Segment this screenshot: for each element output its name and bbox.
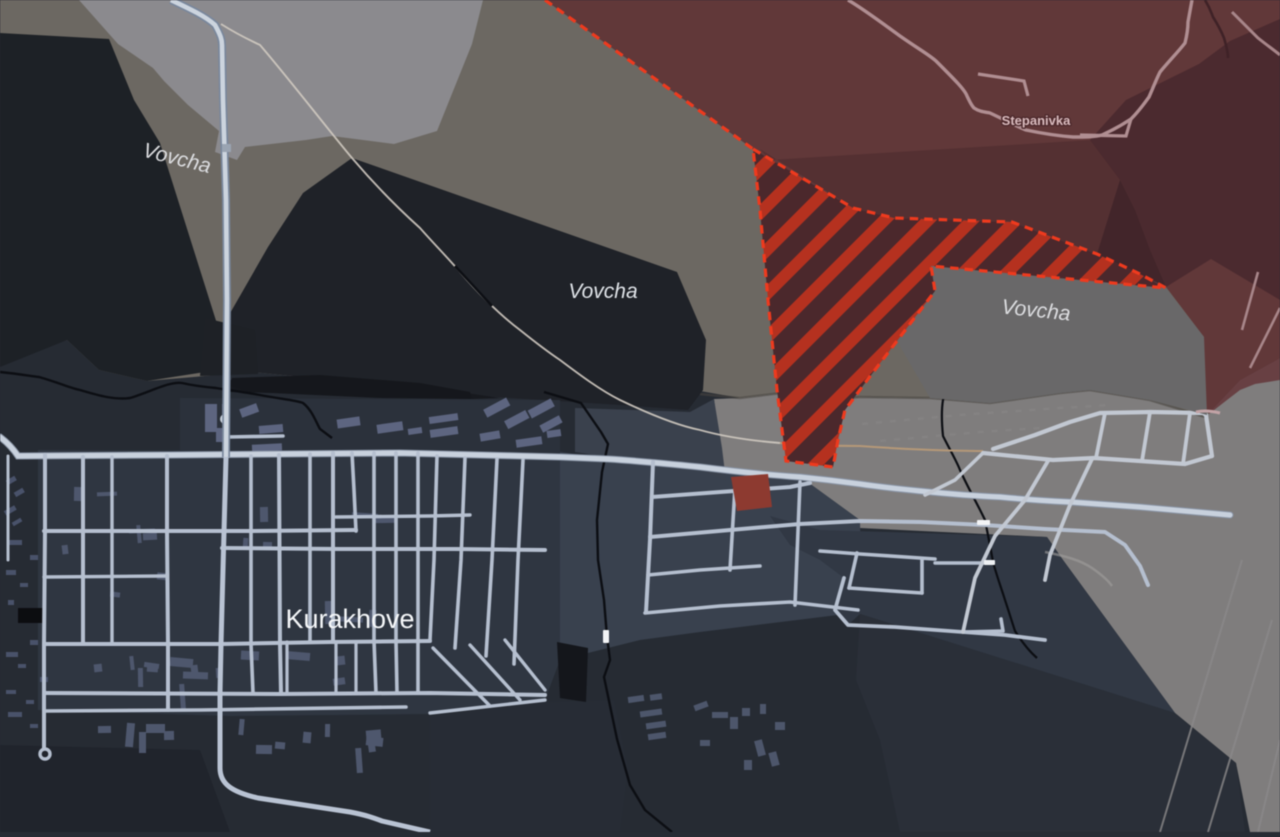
svg-text:Vovcha: Vovcha	[568, 280, 637, 303]
svg-text:Stepanivka: Stepanivka	[1002, 113, 1071, 128]
svg-text:Kurakhove: Kurakhove	[285, 604, 414, 634]
